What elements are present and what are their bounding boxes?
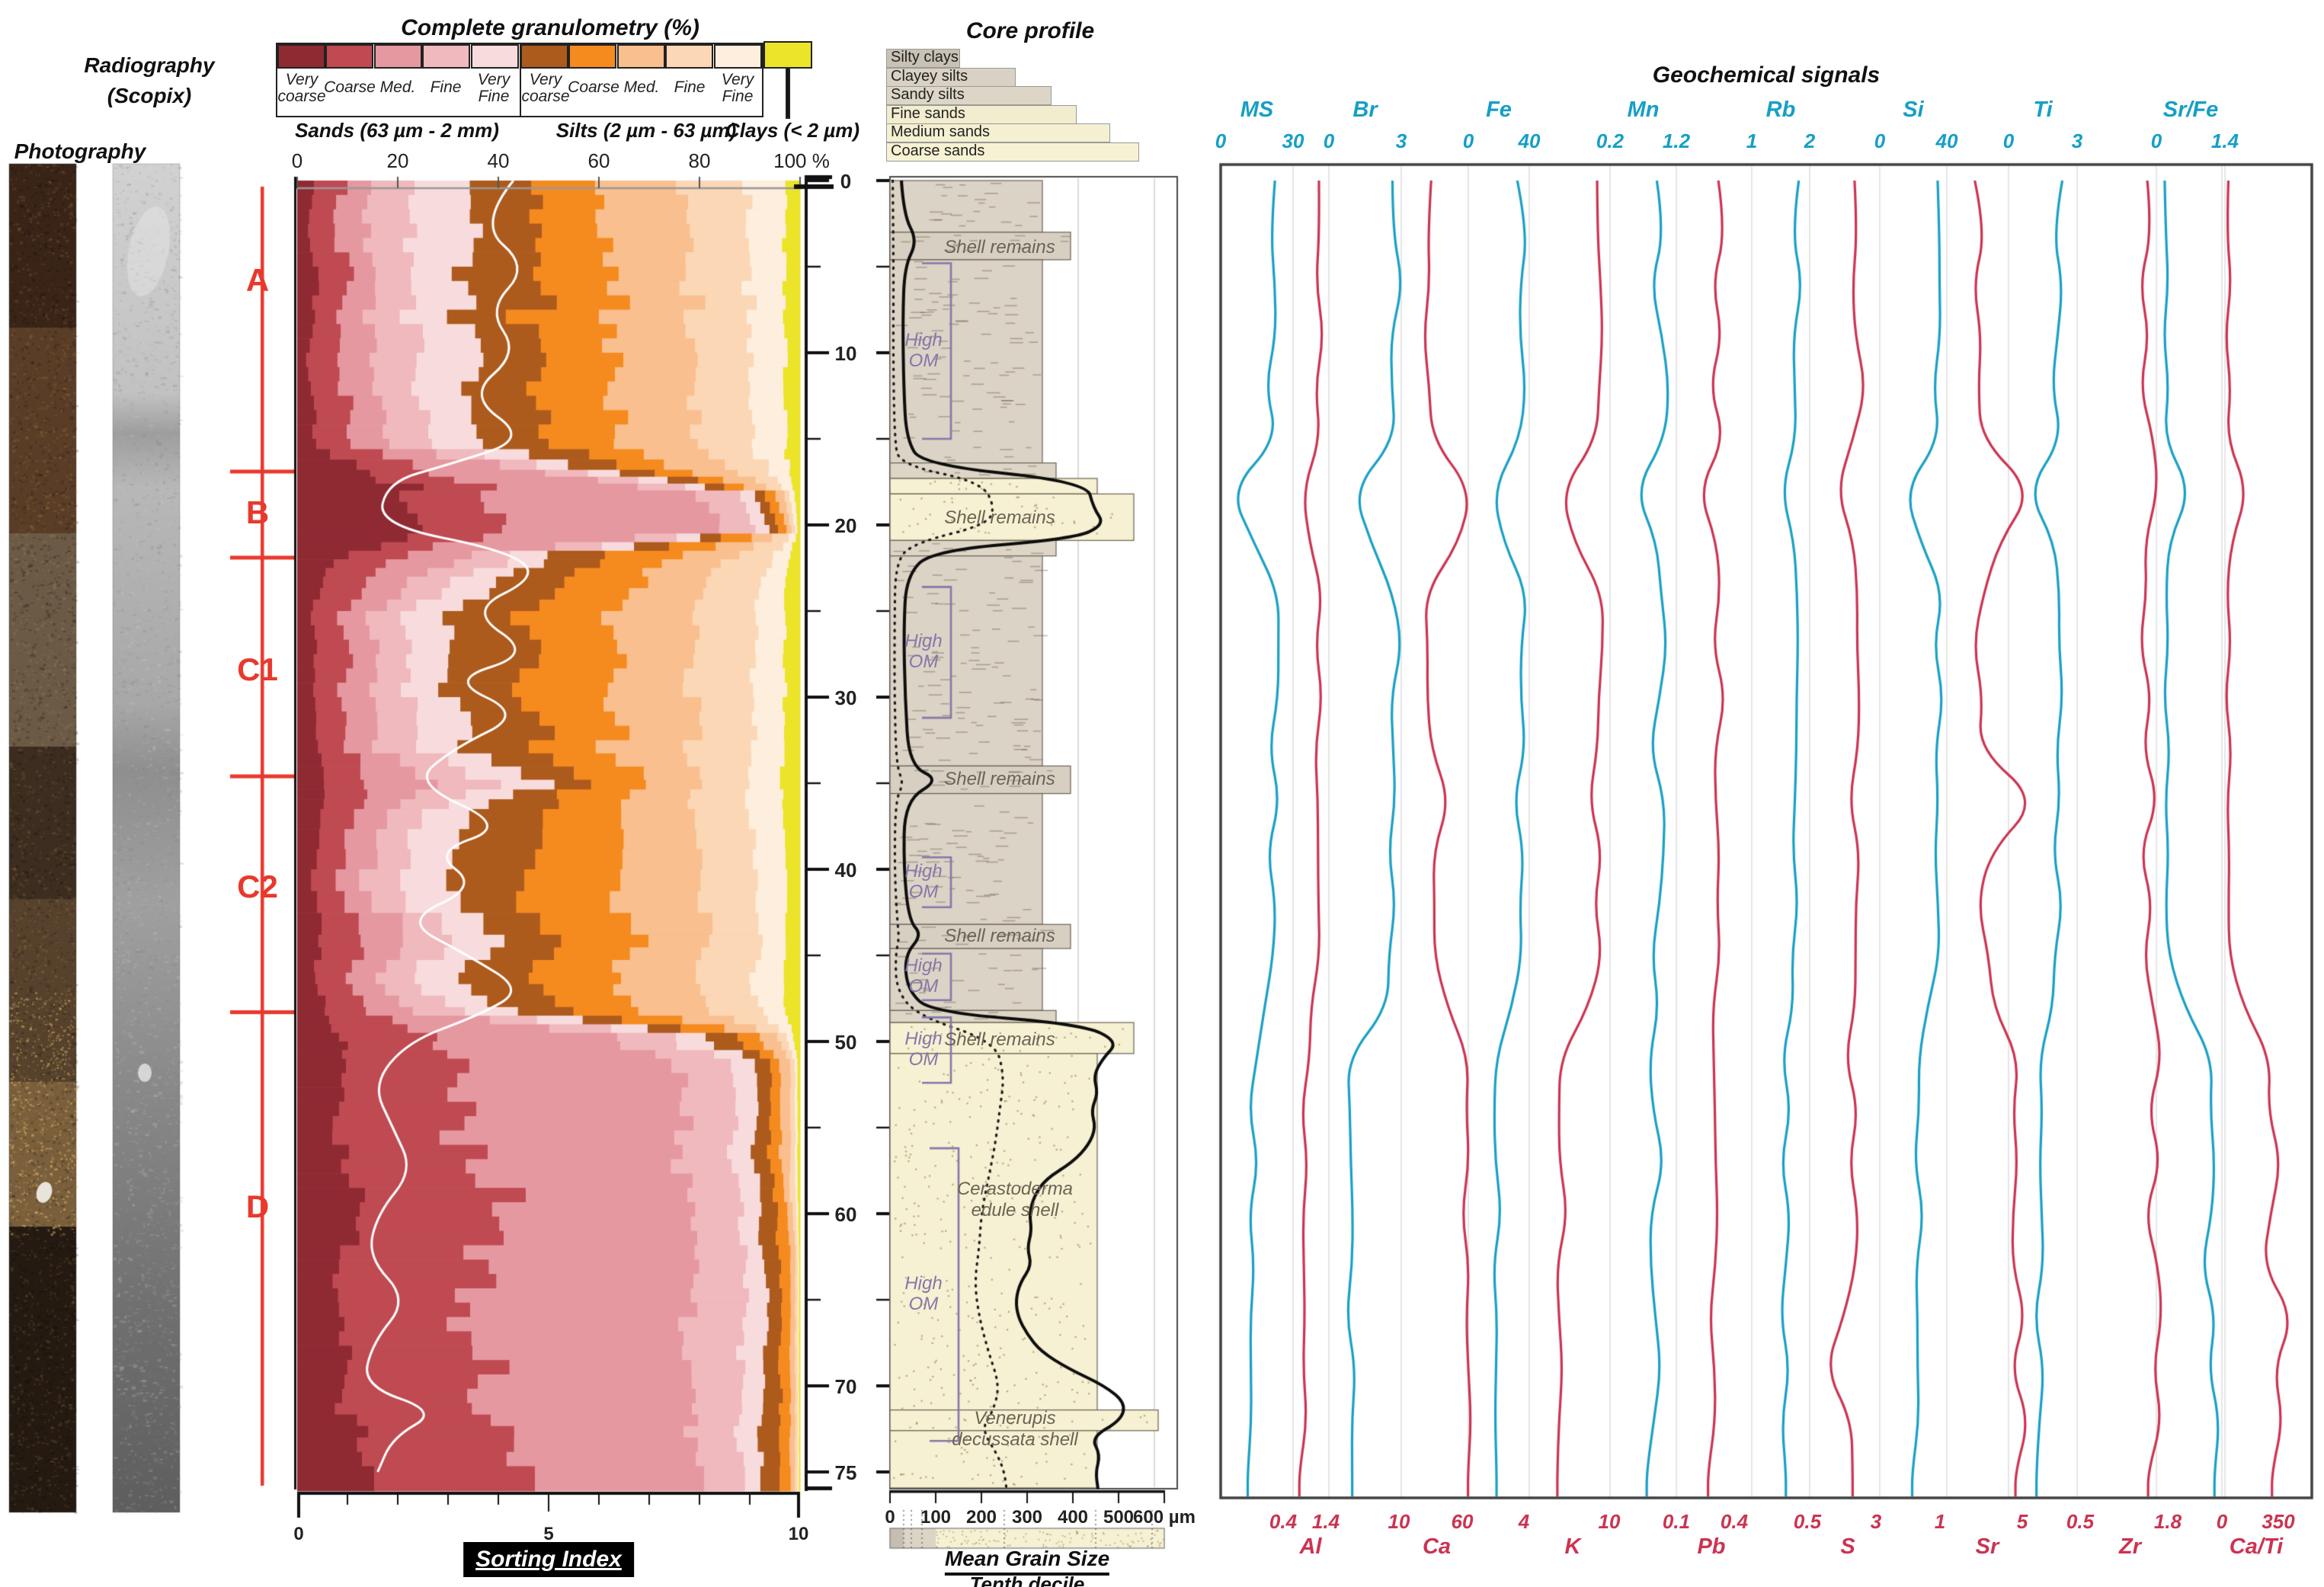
silt-category-label: Verycoarse [521,72,569,105]
signal-bottom-name-1: Ca [1423,1534,1451,1560]
high-om-label: HighOM [904,861,942,902]
high-om-label: HighOM [904,330,942,371]
high-om-label: HighOM [904,631,942,672]
signal-bottom-name-6: Zr [2119,1534,2141,1560]
depth-tick-label: 0 [840,170,851,194]
signal-bottom-min-5: 1 [1935,1510,1945,1534]
signal-bottom-name-2: K [1565,1534,1581,1560]
clay-connector-line [786,67,790,119]
signal-top-max-4: 2 [1804,130,1815,153]
zone-label-d: D [246,1189,269,1225]
zone-label-b: B [246,494,269,531]
photography-title: Photography [14,139,146,164]
grain-size-tick-label: 100 [920,1507,951,1528]
signal-bottom-name-7: Ca/Ti [2230,1534,2283,1560]
signal-bottom-max-6: 1.8 [2154,1510,2182,1534]
clays-group-label: Clays (< 2 µm) [725,119,859,142]
signal-bottom-min-1: 10 [1388,1510,1410,1534]
signal-bottom-min-6: 0.5 [2066,1510,2094,1534]
silts-group-label: Silts (2 µm - 63 µm) [556,119,737,142]
high-om-label: HighOM [904,1273,942,1314]
grain-size-tick-label: 400 [1058,1507,1088,1528]
grain-size-tick-label: 300 [1012,1507,1042,1528]
signal-bottom-min-7: 0 [2217,1510,2227,1534]
depth-tick-label: 75 [835,1461,857,1485]
signal-top-min-5: 0 [1874,130,1885,153]
radiography-title: Radiography [84,53,214,78]
core-log-figure: Photography Radiography (Scopix) Complet… [0,0,2324,1587]
signal-bottom-min-2: 4 [1519,1510,1529,1534]
signal-bottom-min-3: 0.1 [1663,1510,1690,1534]
percent-tick-label: 0 [292,149,303,173]
signal-bottom-name-3: Pb [1697,1534,1725,1560]
percent-tick-label: 20 [387,149,409,173]
granulometry-swatch [325,44,373,69]
sorting-index-label: Sorting Index [463,1542,634,1577]
core-legend-label: Sandy silts [891,86,965,104]
granulometry-swatch [277,44,325,69]
depth-tick-label: 50 [835,1031,857,1054]
shell-remains-label: Shell remains [944,507,1055,529]
tenth-decile-label: Tenth decile [970,1573,1085,1587]
depth-tick-label: 30 [835,686,857,710]
depth-tick-label: 40 [835,859,857,882]
signal-top-max-2: 40 [1519,130,1541,153]
percent-tick-label: 100 % [773,149,830,173]
core-legend-label: Fine sands [891,105,965,123]
signal-top-name-7: Sr/Fe [2163,98,2219,123]
signal-top-min-6: 0 [2003,130,2014,153]
percent-tick-label: 60 [588,149,610,173]
silt-category-label: Coarse [568,79,619,96]
signal-top-max-3: 1.2 [1663,130,1690,153]
shell-remains-label: Shell remains [944,1029,1055,1051]
grain-size-tick-label: 200 [966,1507,997,1528]
signal-top-max-1: 3 [1396,130,1407,153]
percent-tick-label: 80 [689,149,711,173]
sand-category-label: Med. [380,79,416,96]
signal-top-name-6: Ti [2033,98,2052,123]
shell-remains-label: Shell remains [944,769,1055,790]
signal-top-min-0: 0 [1215,130,1226,153]
granulometry-swatch [374,44,422,69]
grain-size-tick-label: 500 [1103,1507,1134,1528]
core-legend-label: Medium sands [891,123,990,141]
sand-category-label: VeryFine [478,72,510,105]
signal-top-min-7: 0 [2151,130,2162,153]
signal-bottom-max-4: 3 [1871,1510,1881,1534]
signal-top-name-5: Si [1903,98,1923,123]
signal-bottom-max-3: 0.4 [1721,1510,1748,1534]
core-legend-label: Clayey silts [891,68,968,85]
depth-tick-label: 70 [835,1375,857,1399]
sorting-tick-label: 10 [789,1524,809,1545]
geochemical-signals-title: Geochemical signals [1653,62,1880,88]
silt-category-label: Fine [674,79,706,96]
signal-top-name-2: Fe [1486,98,1512,123]
depth-tick-label: 20 [835,514,857,538]
high-om-label: HighOM [904,1029,942,1070]
figure-canvas [0,0,2324,1587]
granulometry-swatch [714,44,762,69]
zone-label-c1: C1 [237,651,278,688]
signal-top-name-3: Mn [1628,98,1660,123]
signal-top-max-7: 1.4 [2211,130,2239,153]
granulometry-swatch [422,44,470,69]
sand-category-label: Verycoarse [277,72,325,105]
shell-remains-label: Shell remains [944,926,1055,947]
grain-size-tick-label: 0 [885,1507,895,1528]
sand-category-label: Coarse [324,79,376,96]
sorting-tick-label: 0 [293,1524,303,1545]
sand-category-label: Fine [431,79,462,96]
depth-tick-label: 60 [835,1203,857,1227]
core-profile-title: Core profile [966,18,1094,44]
signal-top-max-6: 3 [2072,130,2082,153]
signal-top-min-3: 0.2 [1596,130,1624,153]
signal-top-name-4: Rb [1766,98,1796,123]
zone-label-c2: C2 [237,869,278,905]
percent-tick-label: 40 [488,149,510,173]
core-legend-label: Silty clays [891,49,959,66]
grain-size-tick-label: 600 µm [1133,1507,1196,1528]
granulometry-swatch [568,44,616,69]
silt-category-label: Med. [624,79,660,96]
granulometry-swatch [665,44,713,69]
zone-label-a: A [246,262,269,299]
mean-grain-size-label: Mean Grain Size [945,1547,1109,1576]
radiography-subtitle: (Scopix) [107,84,191,108]
sands-group-label: Sands (63 µm - 2 mm) [295,119,499,142]
shell-remains-label: Shell remains [944,237,1055,258]
signal-bottom-max-2: 10 [1599,1510,1621,1534]
signal-bottom-max-0: 1.4 [1312,1510,1340,1534]
granulometry-swatch [471,44,519,69]
granulometry-swatch [617,44,665,69]
signal-top-max-5: 40 [1936,130,1958,153]
signal-bottom-max-7: 350 [2262,1510,2294,1534]
signal-top-min-1: 0 [1324,130,1334,153]
signal-top-min-2: 0 [1463,130,1474,153]
granulometry-title: Complete granulometry (%) [401,15,699,41]
species-label: Cerastodermaedule shell [957,1179,1073,1221]
signal-bottom-name-0: Al [1300,1534,1322,1560]
signal-bottom-name-5: Sr [1976,1534,1999,1560]
species-label: Venerupisdecussata shell [952,1408,1077,1451]
signal-top-name-1: Br [1352,98,1377,123]
signal-bottom-name-4: S [1840,1534,1855,1560]
signal-top-min-4: 1 [1746,130,1757,153]
depth-tick-label: 10 [835,342,857,366]
signal-top-max-0: 30 [1282,130,1304,153]
signal-bottom-max-1: 60 [1452,1510,1474,1534]
silt-category-label: VeryFine [722,72,754,105]
signal-bottom-min-4: 0.5 [1794,1510,1821,1534]
sorting-tick-label: 5 [543,1524,553,1545]
signal-bottom-min-0: 0.4 [1269,1510,1297,1534]
signal-bottom-max-5: 5 [2017,1510,2028,1534]
core-legend-label: Coarse sands [891,142,984,160]
granulometry-swatch [520,44,568,69]
clay-swatch [763,41,812,69]
high-om-label: HighOM [904,955,942,997]
signal-top-name-0: MS [1240,98,1274,123]
